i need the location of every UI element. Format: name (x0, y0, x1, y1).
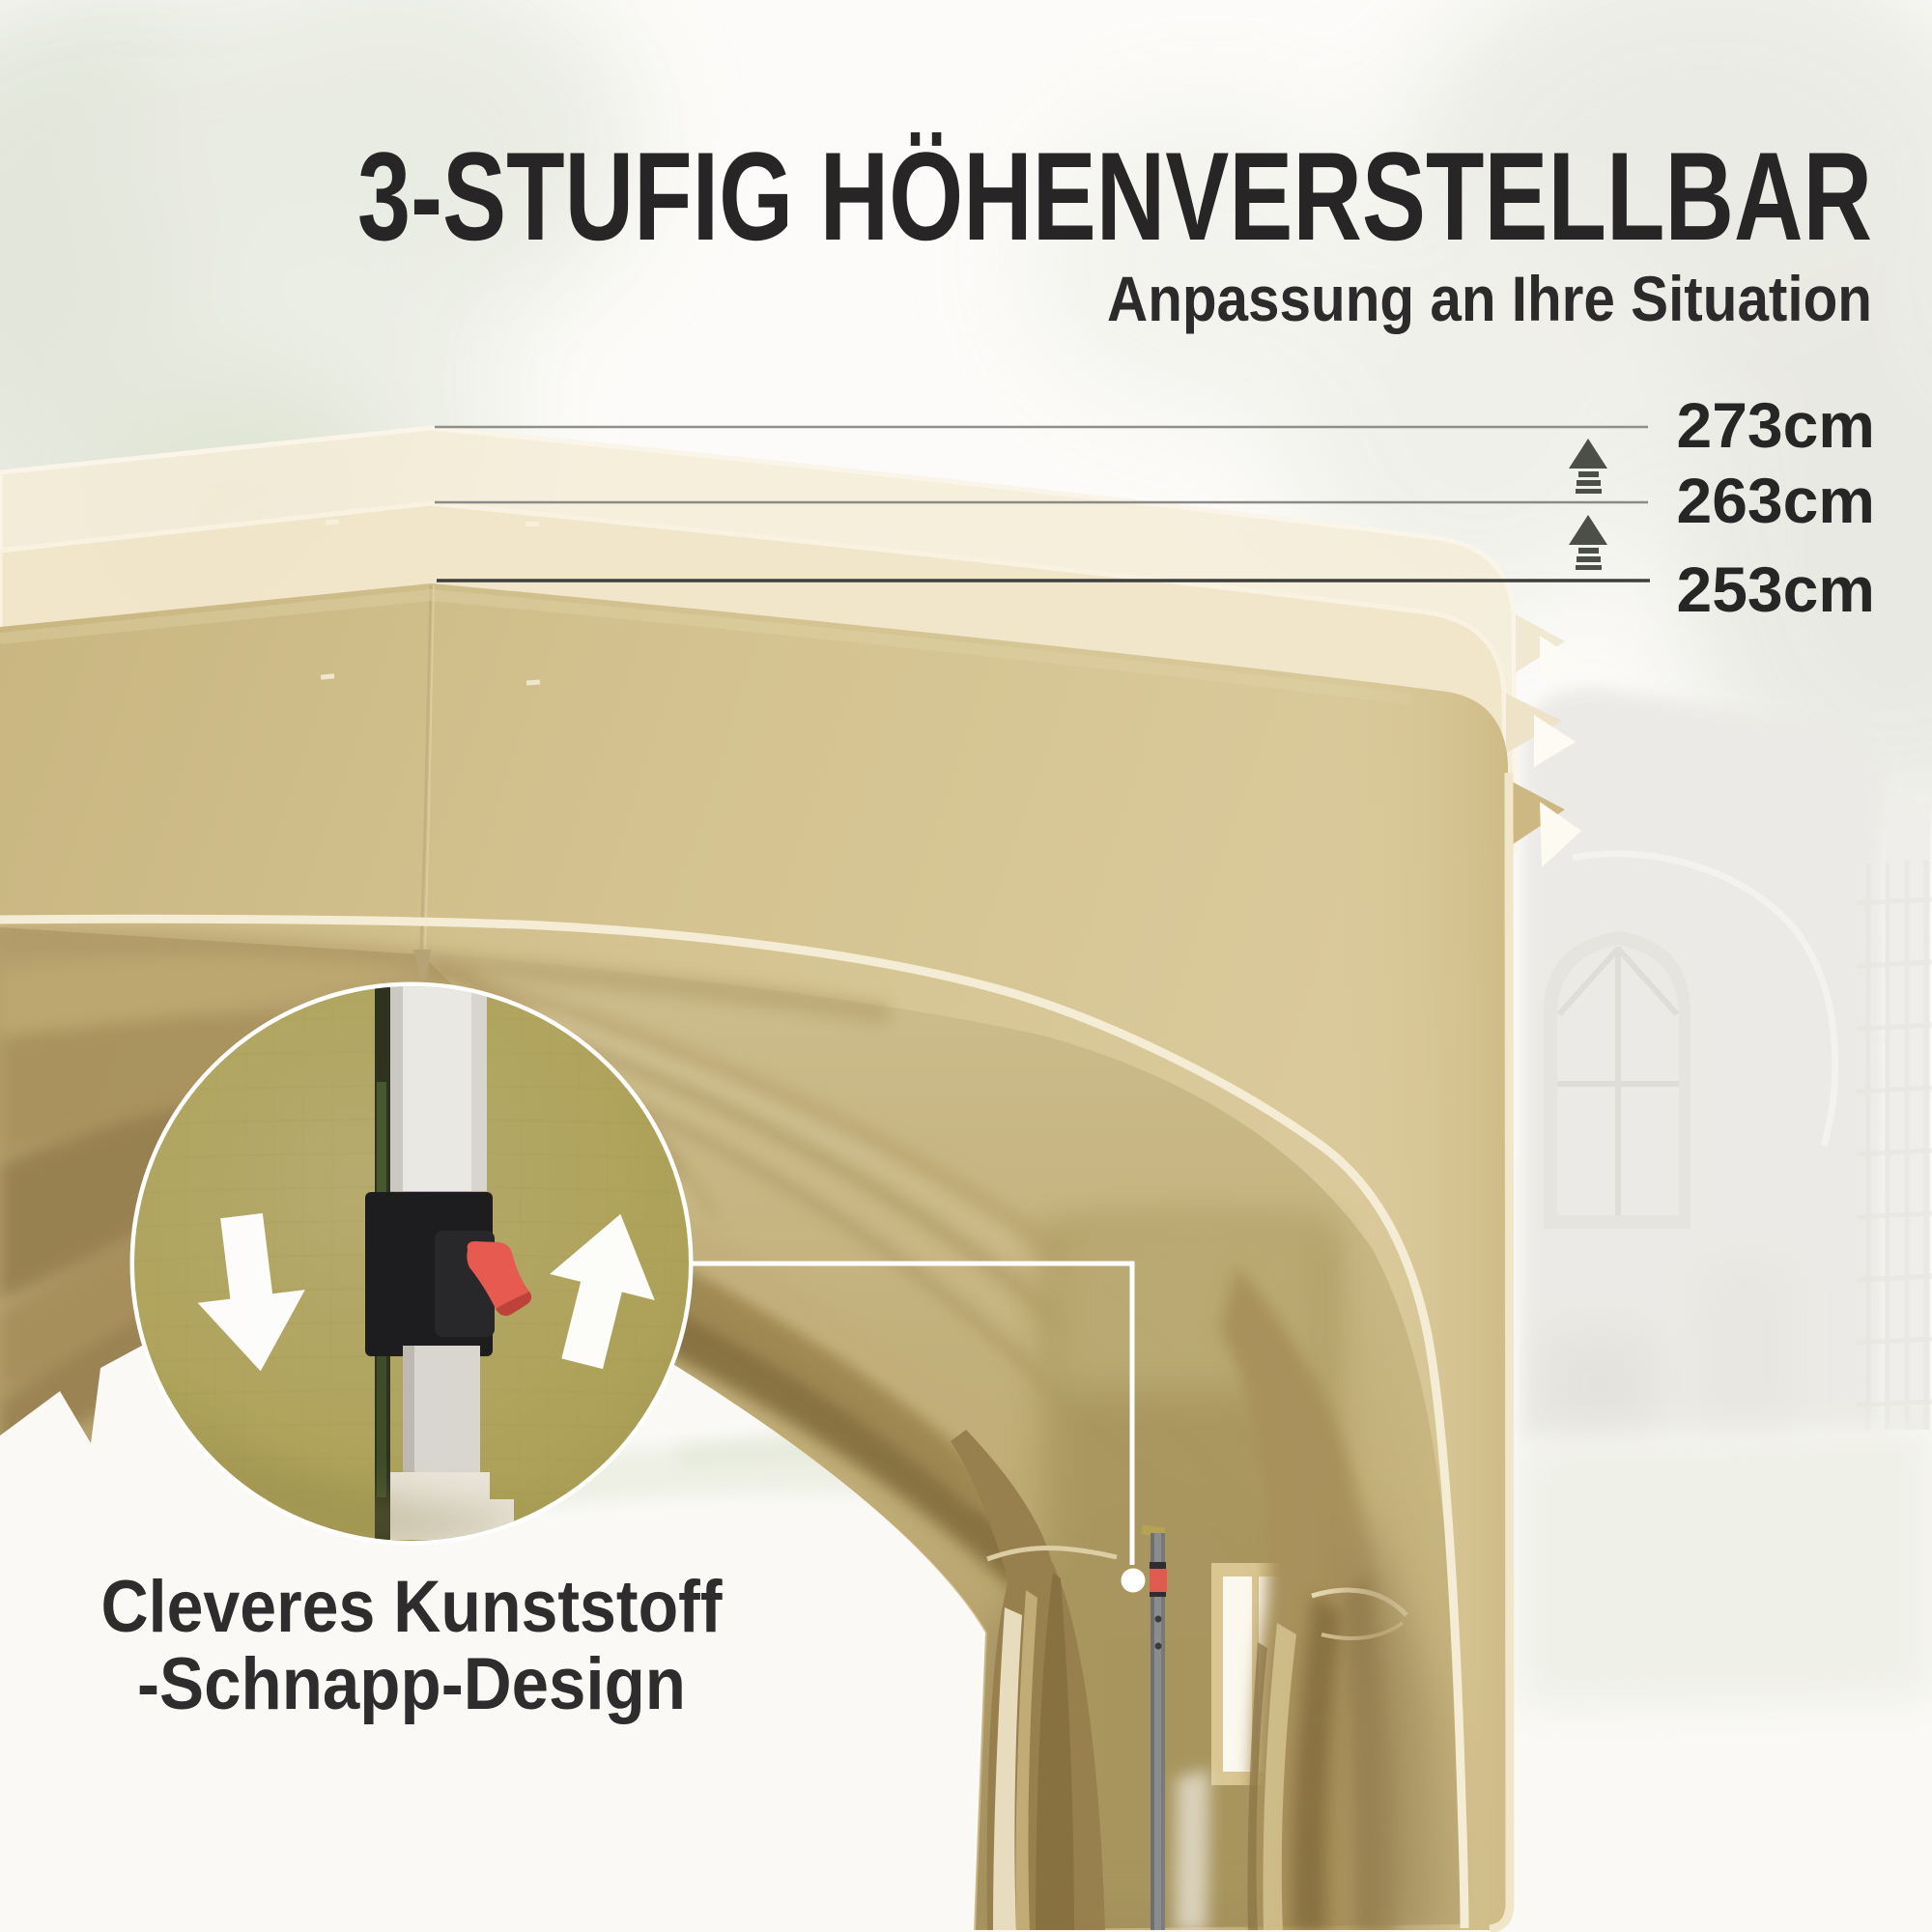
svg-text:Anpassung an Ihre Situation: Anpassung an Ihre Situation (1107, 263, 1872, 334)
svg-text:3-STUFIG HÖHENVERSTELLBAR: 3-STUFIG HÖHENVERSTELLBAR (357, 126, 1872, 267)
svg-text:-Schnapp-Design: -Schnapp-Design (137, 1643, 686, 1725)
svg-text:263cm: 263cm (1676, 465, 1875, 536)
svg-text:253cm: 253cm (1676, 554, 1875, 625)
svg-text:273cm: 273cm (1676, 389, 1875, 461)
svg-text:Cleveres Kunststoff: Cleveres Kunststoff (101, 1566, 724, 1648)
